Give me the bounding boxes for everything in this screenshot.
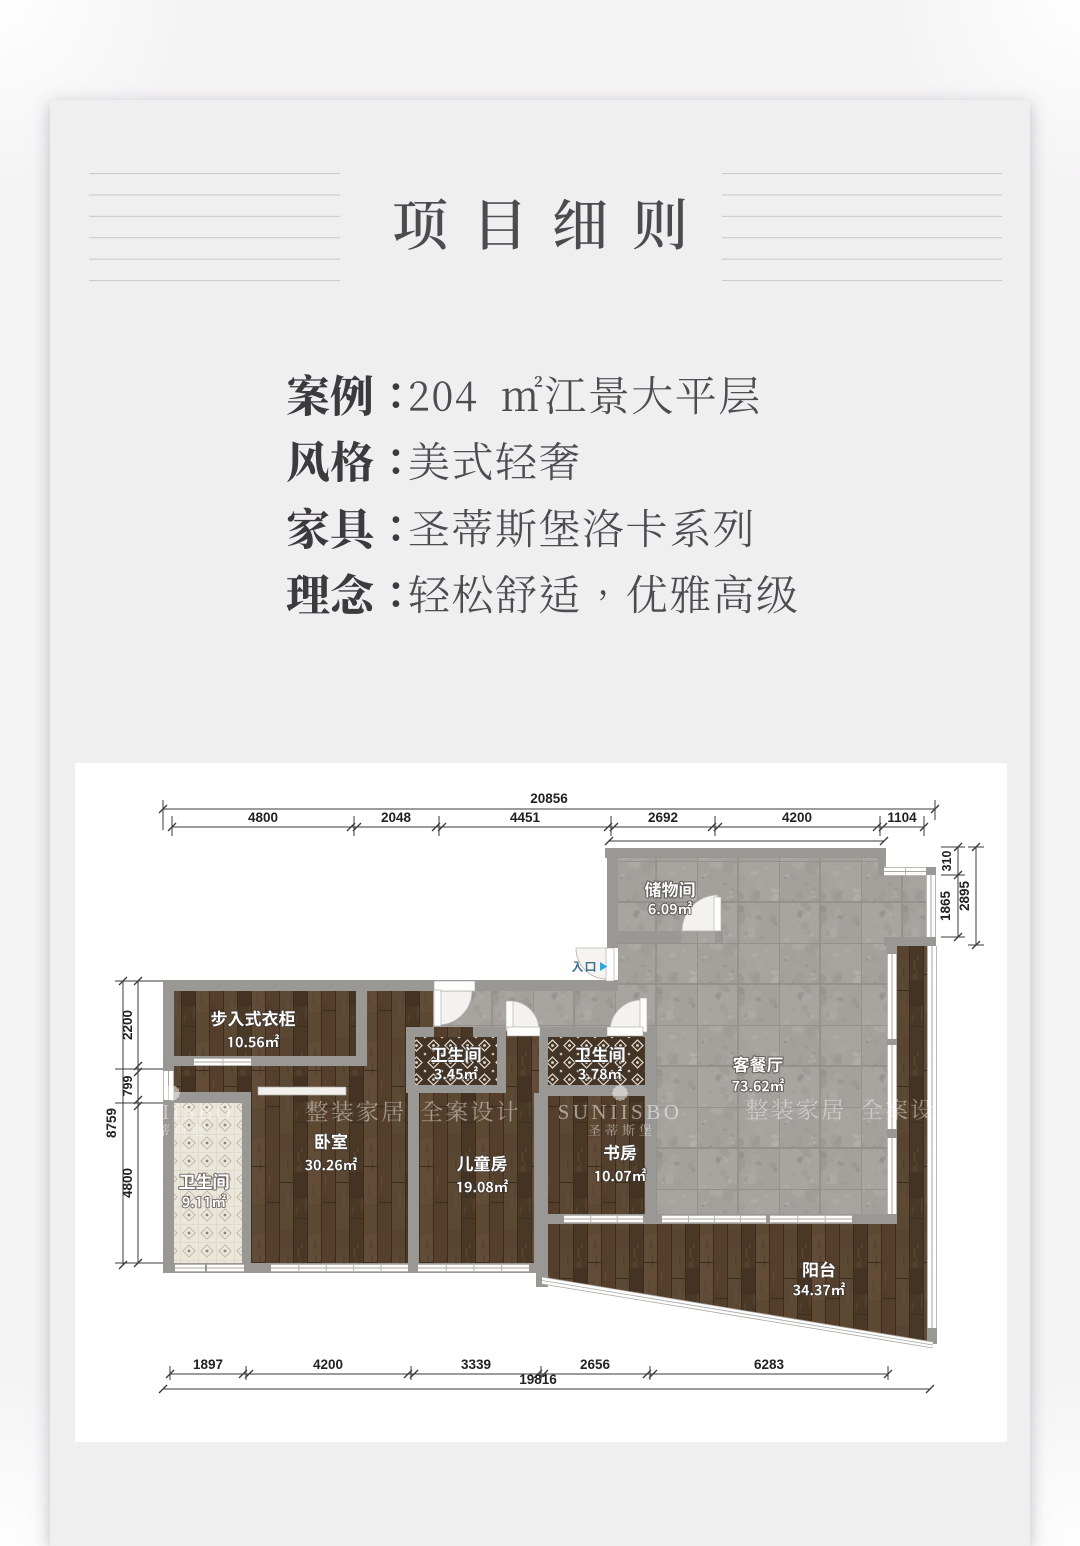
svg-text:19816: 19816 [519,1372,557,1387]
svg-text:6283: 6283 [754,1357,785,1372]
svg-text:1865: 1865 [938,890,953,921]
svg-text:4451: 4451 [510,810,541,825]
svg-text:4800: 4800 [120,1168,135,1198]
svg-text:2692: 2692 [648,810,678,825]
svg-text:2048: 2048 [381,810,412,825]
svg-text:4200: 4200 [782,810,812,825]
svg-text:3339: 3339 [461,1357,491,1372]
svg-text:1897: 1897 [193,1357,223,1372]
svg-text:2895: 2895 [957,880,972,911]
svg-text:1104: 1104 [887,810,917,825]
svg-text:20856: 20856 [530,791,568,806]
svg-text:SUNIISBO: SUNIISBO [110,1100,235,1124]
svg-text:2200: 2200 [120,1010,135,1040]
svg-text:310: 310 [940,851,954,872]
svg-text:4200: 4200 [313,1357,343,1372]
svg-text:799: 799 [121,1076,135,1097]
svg-text:SUNIISBO: SUNIISBO [558,1100,683,1124]
svg-text:4800: 4800 [248,810,278,825]
svg-text:2656: 2656 [580,1357,611,1372]
svg-text:8759: 8759 [104,1108,119,1138]
